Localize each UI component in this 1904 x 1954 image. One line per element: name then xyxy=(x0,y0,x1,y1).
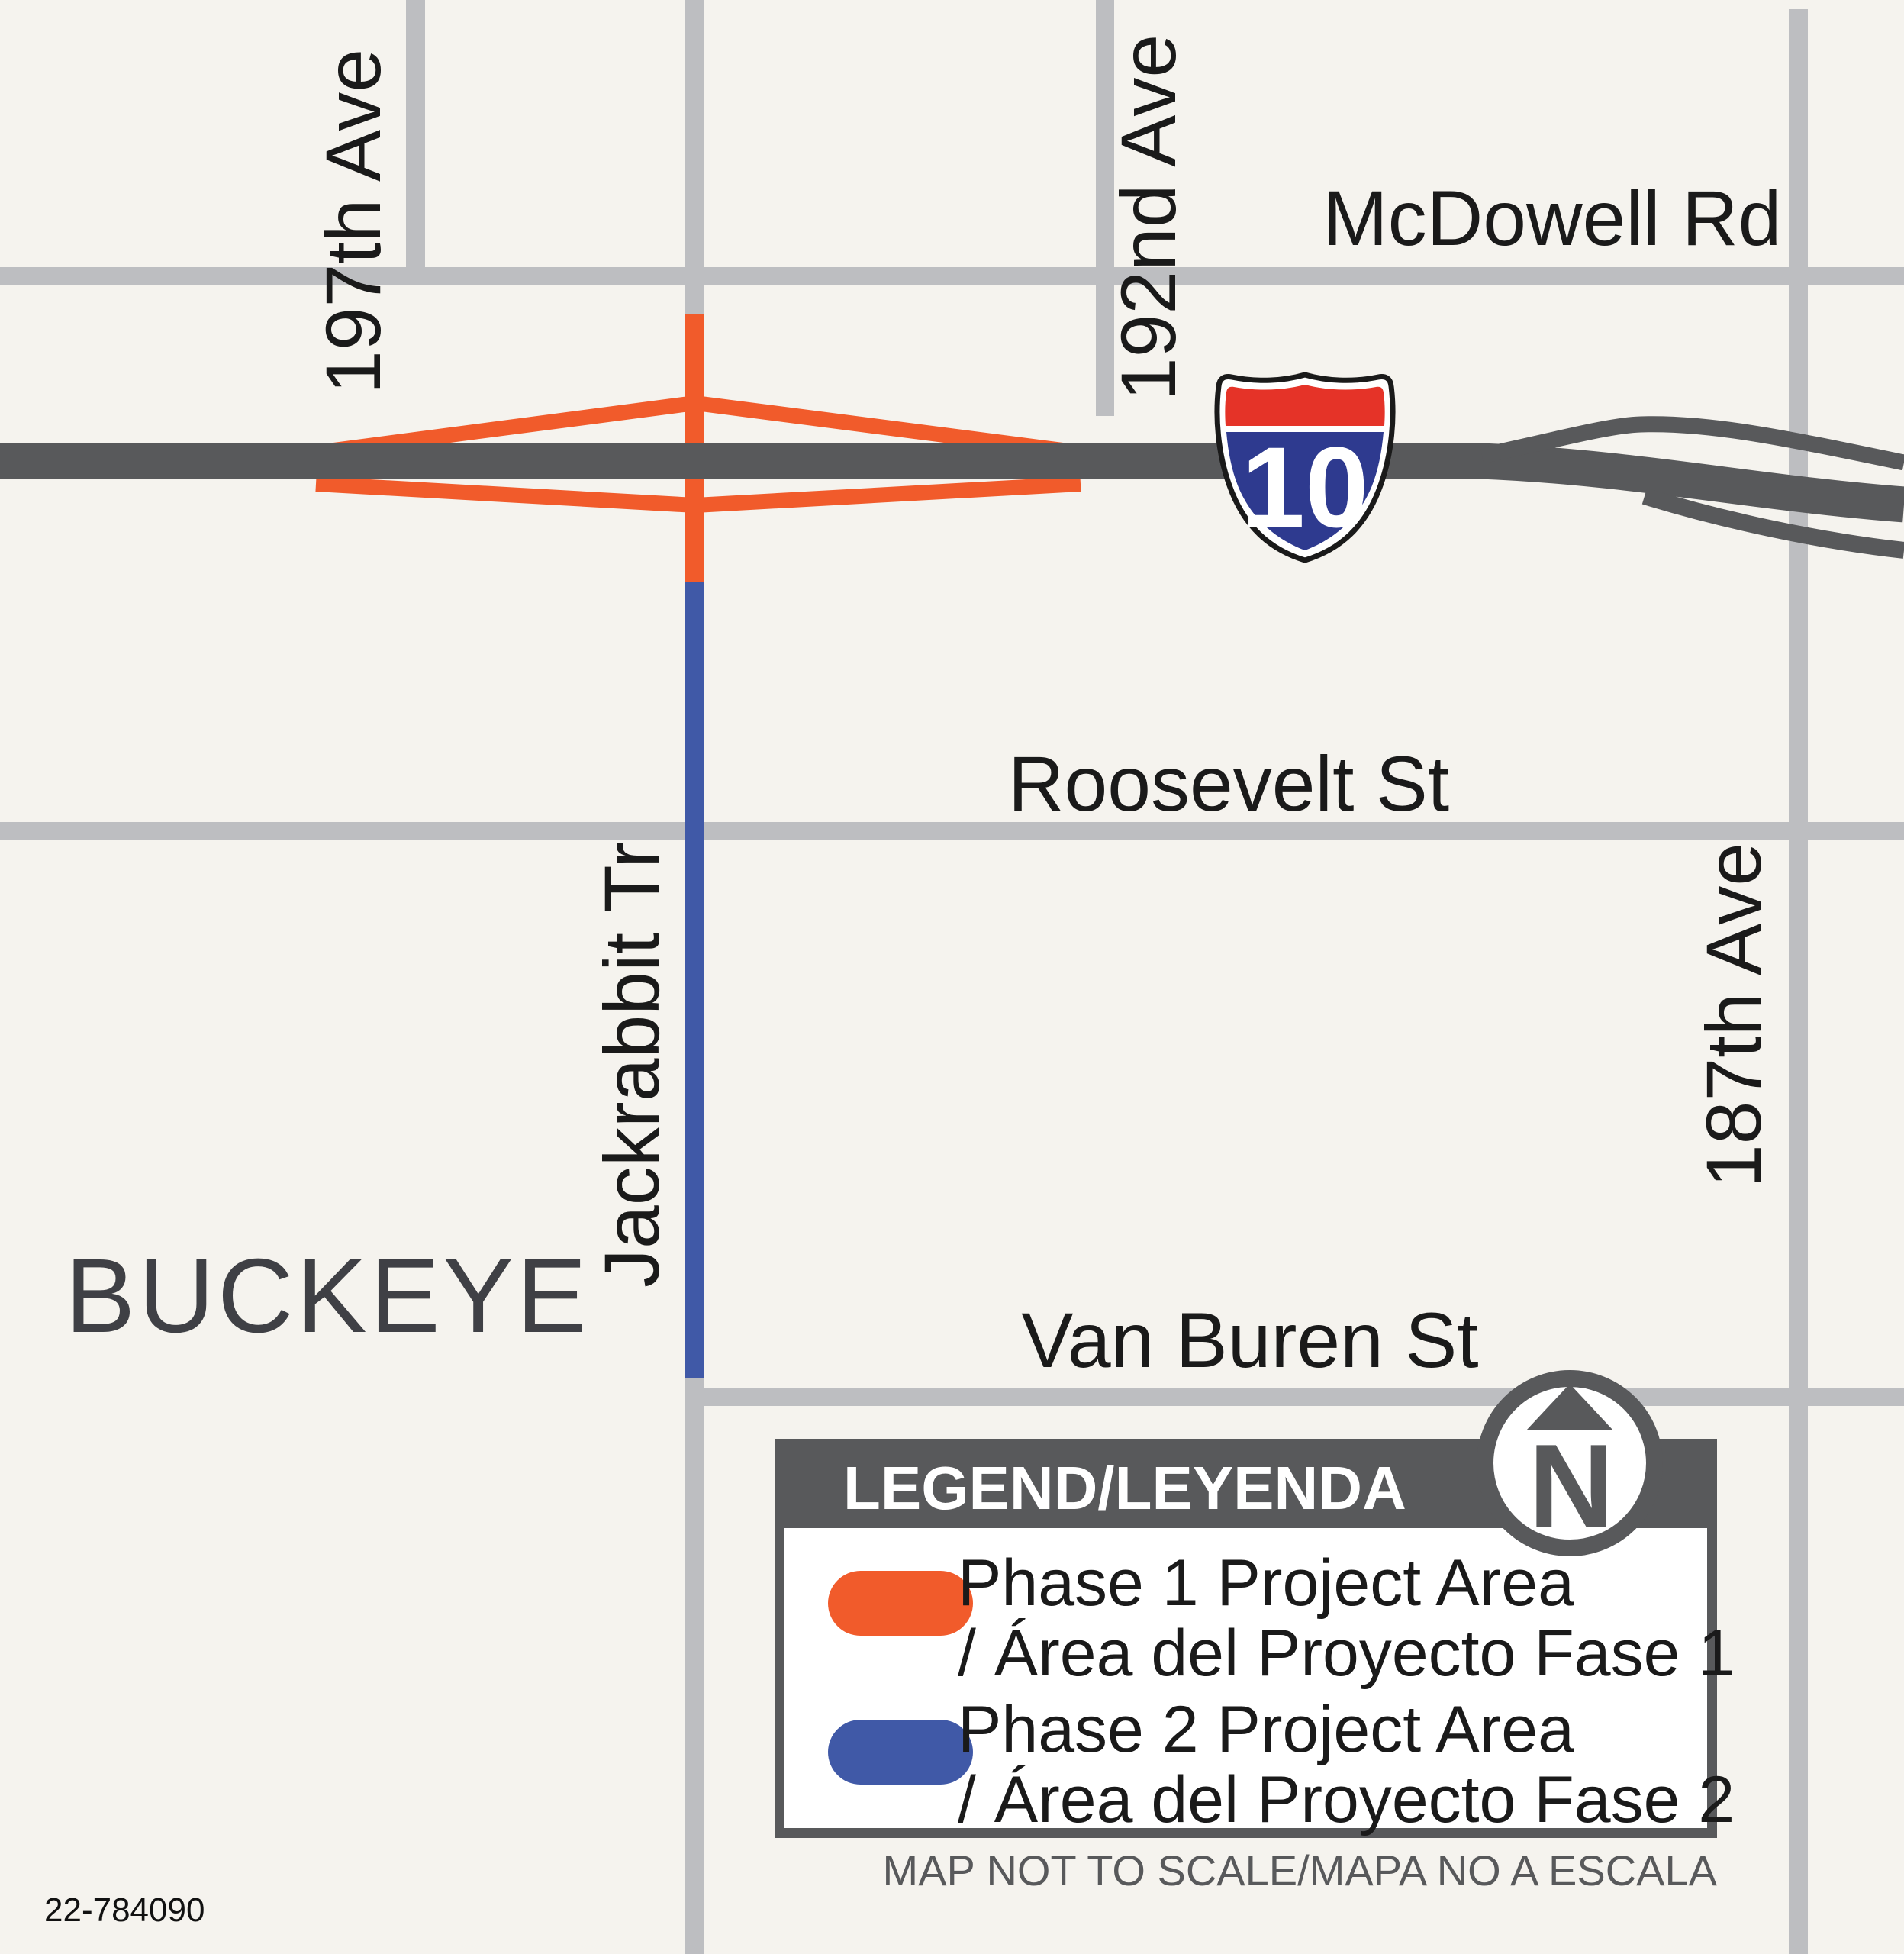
phase1-swatch-icon xyxy=(828,1571,973,1636)
label-187th-ave: 187th Ave xyxy=(1695,843,1773,1188)
phase1-ramp-lower-right xyxy=(695,484,1081,505)
north-arrow-icon: N xyxy=(1469,1362,1675,1569)
phase2-label-line2: / Área del Proyecto Fase 2 xyxy=(958,1765,1735,1835)
label-192nd-ave: 192nd Ave xyxy=(1110,34,1187,401)
phase1-label-line2: / Área del Proyecto Fase 1 xyxy=(958,1618,1735,1688)
map-scale-note: MAP NOT TO SCALE/MAPA NO A ESCALA xyxy=(883,1846,1717,1895)
road-mcdowell xyxy=(0,267,1904,285)
phase2-label-line1: Phase 2 Project Area xyxy=(958,1694,1735,1765)
north-letter: N xyxy=(1529,1420,1614,1552)
shield-red-band xyxy=(1225,385,1384,426)
road-roosevelt xyxy=(0,822,1904,840)
label-mcdowell-rd: McDowell Rd xyxy=(1323,179,1782,257)
label-197th-ave: 197th Ave xyxy=(314,49,392,394)
road-van-buren xyxy=(685,1388,1904,1406)
label-van-buren-st: Van Buren St xyxy=(1021,1301,1478,1379)
interstate-10-shield: 10 xyxy=(1217,375,1393,560)
phase2-jackrabbit-segment xyxy=(685,582,704,1378)
road-197th-ave xyxy=(406,0,425,285)
road-jackrabbit-south-gray xyxy=(685,1378,704,1954)
label-roosevelt-st: Roosevelt St xyxy=(1008,745,1449,823)
plate-number: 22-784090 xyxy=(44,1891,205,1930)
phase2-swatch-icon xyxy=(828,1720,973,1785)
shield-route-number: 10 xyxy=(1242,423,1369,551)
road-jackrabbit-north-gray xyxy=(685,0,704,314)
city-name: BUCKEYE xyxy=(65,1243,590,1349)
project-area-map: 10 197th Ave 192nd Ave McDowell Rd Roose… xyxy=(0,0,1904,1954)
road-187th-ave xyxy=(1789,9,1808,1954)
legend-item-phase1: Phase 1 Project Area / Área del Proyecto… xyxy=(958,1548,1735,1688)
legend-item-phase2: Phase 2 Project Area / Área del Proyecto… xyxy=(958,1694,1735,1835)
label-jackrabbit-tr: Jackrabbit Tr xyxy=(593,842,671,1288)
phase1-ramp-lower-left xyxy=(316,484,695,505)
